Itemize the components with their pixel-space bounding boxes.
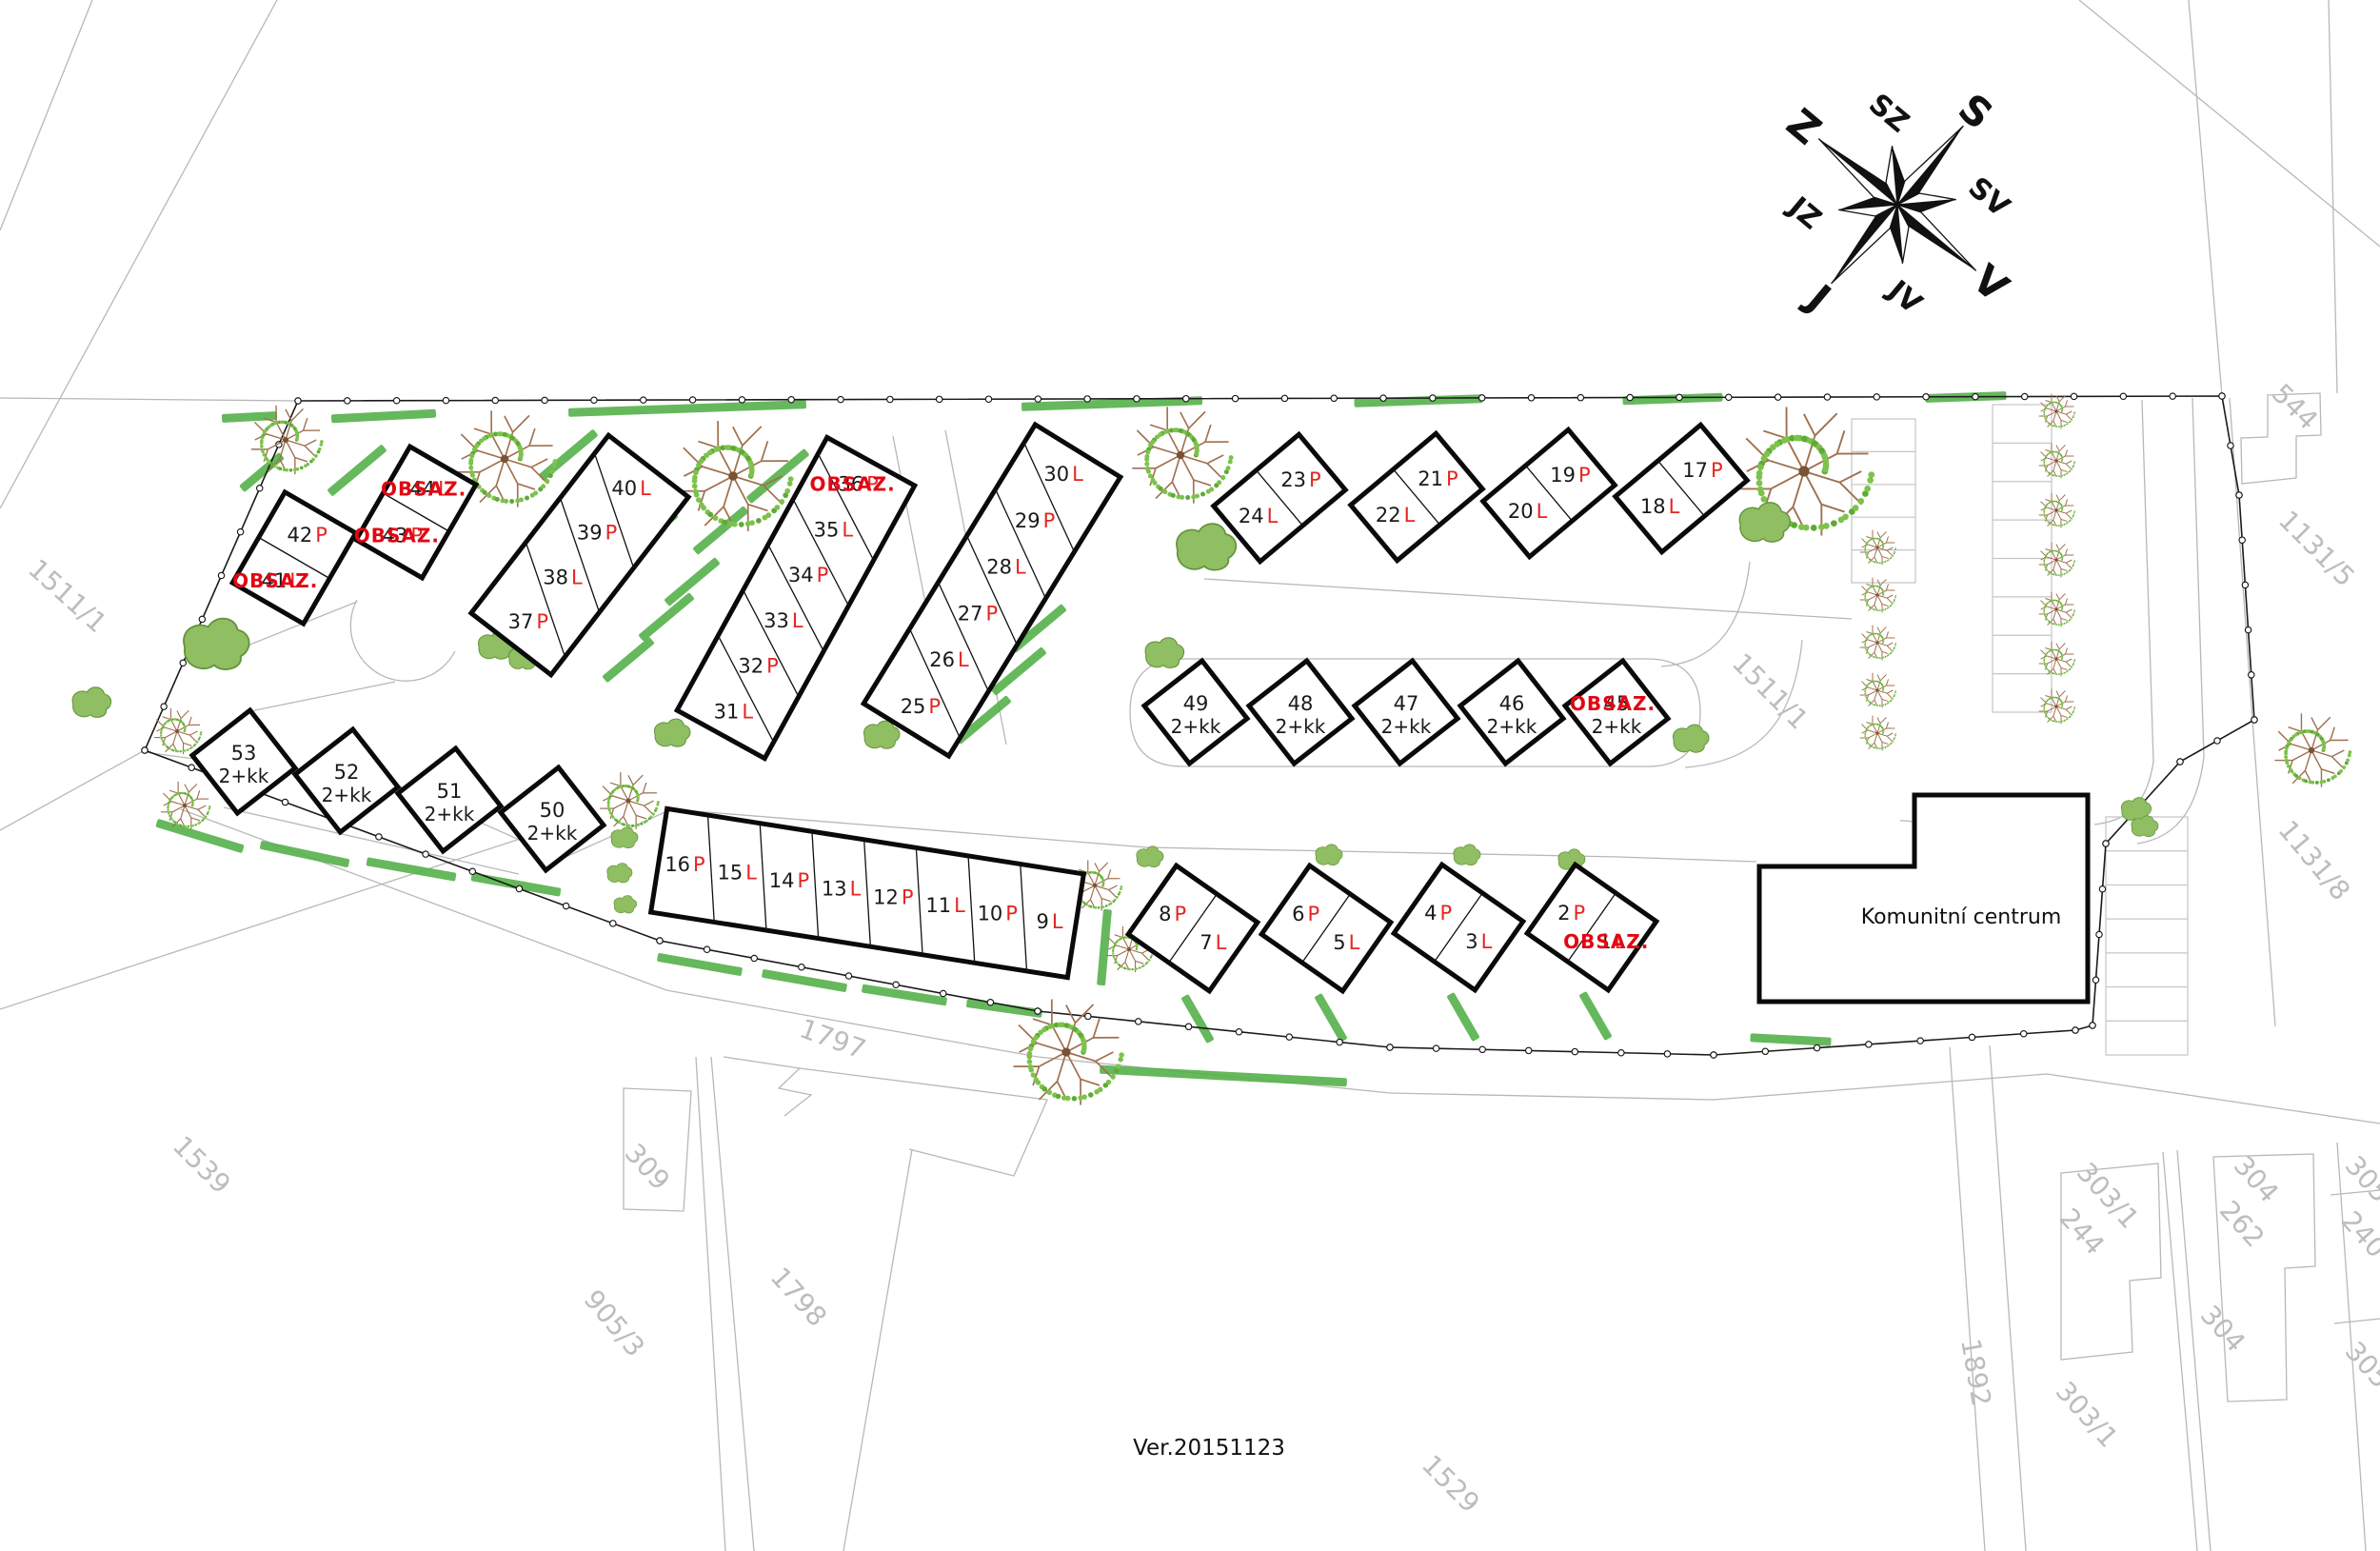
tree-leaf <box>169 815 170 817</box>
occupied-badge: OBSAZ. <box>1563 930 1649 953</box>
tree-leaf <box>1876 538 1878 540</box>
tree-leaf <box>1791 522 1797 528</box>
building-duplex <box>1128 865 1258 991</box>
boundary-vertex-dot <box>1726 394 1732 400</box>
tree-leaf <box>2053 720 2054 722</box>
tree-leaf <box>2311 781 2314 785</box>
tree-leaf <box>713 515 719 521</box>
tree-leaf <box>1031 1072 1037 1078</box>
tree-icon <box>2039 689 2075 725</box>
tree-trunk <box>626 799 631 804</box>
tree-leaf <box>1894 692 1896 694</box>
tree-leaf <box>2073 512 2075 514</box>
unit-letter: L <box>842 518 853 541</box>
kc-building <box>1759 795 2088 1002</box>
boundary-vertex-dot <box>2096 931 2102 937</box>
tree-icon <box>1860 673 1896 708</box>
road-line <box>1661 562 1750 666</box>
tree-leaf <box>2070 668 2072 670</box>
tree-leaf <box>2073 663 2074 665</box>
tree-leaf <box>1881 588 1883 590</box>
tree-leaf <box>1094 871 1097 874</box>
tree-leaf <box>200 733 202 735</box>
compass-label: J <box>1796 273 1840 321</box>
tree-leaf <box>2045 517 2047 519</box>
tree-trunk <box>1061 1047 1070 1056</box>
tree-leaf <box>2058 574 2060 576</box>
tree-leaf <box>2046 470 2048 472</box>
tree-leaf <box>1894 549 1896 551</box>
parcel-label: 1892 <box>1954 1336 1997 1408</box>
tree-leaf <box>1029 1067 1035 1073</box>
unit-label: 33L <box>764 609 803 632</box>
parcel-label: 304 <box>2194 1300 2251 1359</box>
tree-leaf <box>176 719 178 721</box>
tree-leaf <box>765 512 771 518</box>
unit-number: 3 <box>1465 930 1478 953</box>
tree-leaf <box>1114 899 1117 902</box>
tree-leaf <box>1124 967 1126 969</box>
boundary-vertex-dot <box>2228 443 2233 448</box>
tree-leaf <box>1879 587 1881 588</box>
tree-leaf <box>1191 437 1196 442</box>
tree-leaf <box>1090 905 1093 908</box>
tree-leaf <box>1113 956 1115 958</box>
parcel-label: 1131/8 <box>2272 814 2357 906</box>
tree-leaf <box>756 518 762 524</box>
hedge-stripe <box>1622 393 1722 406</box>
tree-leaf <box>2073 465 2074 467</box>
tree-leaf <box>2067 718 2069 720</box>
tree-icon <box>1132 407 1233 503</box>
tree-leaf <box>1028 1046 1034 1052</box>
tree-leaf <box>2073 463 2075 465</box>
tree-leaf <box>2322 745 2326 748</box>
tree-leaf <box>2342 766 2346 769</box>
tree-leaf <box>1864 486 1871 492</box>
boundary-vertex-dot <box>1134 396 1140 402</box>
tree-leaf <box>1072 1096 1078 1102</box>
unit-type-label: 2+kk <box>1381 715 1432 738</box>
unit-number: 34 <box>788 564 814 587</box>
tree-leaf <box>194 744 196 746</box>
tree-leaf <box>2055 649 2057 651</box>
tree-leaf <box>482 436 486 441</box>
tree-leaf <box>1063 1023 1069 1028</box>
tree-leaf <box>2070 421 2072 423</box>
tree-leaf <box>1842 514 1849 521</box>
hedge-stripe <box>1100 1065 1347 1087</box>
unit-letter: P <box>1175 903 1187 925</box>
tree-leaf <box>1114 958 1116 960</box>
tree-leaf <box>2070 520 2072 522</box>
tree-leaf <box>1882 545 1884 547</box>
unit-number: 31 <box>714 700 740 723</box>
tree-leaf <box>693 470 699 476</box>
boundary-vertex-dot <box>1572 1048 1577 1054</box>
boundary-vertex-dot <box>1479 1046 1485 1052</box>
tree-leaf <box>1874 633 1876 635</box>
unit-label: 28L <box>986 556 1026 579</box>
unit-letter: L <box>1216 931 1227 954</box>
tree-leaf <box>1870 559 1872 561</box>
tree-leaf <box>2073 413 2075 415</box>
tree-leaf <box>266 458 269 462</box>
unit-letter: P <box>536 610 548 633</box>
boundary-vertex-dot <box>2242 582 2248 587</box>
tree-leaf <box>2284 751 2288 755</box>
tree-leaf <box>749 520 755 526</box>
unit-letter: P <box>315 524 327 547</box>
unit-letter: P <box>766 655 779 678</box>
tree-leaf <box>1864 692 1866 694</box>
tree-leaf <box>318 447 322 451</box>
tree-leaf <box>2058 721 2060 723</box>
tree-leaf <box>2060 700 2062 702</box>
tree-leaf <box>1106 1080 1112 1085</box>
tree-leaf <box>2048 698 2050 700</box>
tree-leaf <box>510 435 515 440</box>
tree-leaf <box>1874 724 1876 726</box>
tree-leaf <box>2050 671 2052 673</box>
tree-leaf <box>1857 498 1864 505</box>
boundary-vertex-dot <box>2236 492 2242 498</box>
hedge-stripe <box>657 953 743 976</box>
boundary-vertex-dot <box>689 397 695 403</box>
tree-leaf <box>2043 708 2045 710</box>
unit-label: 18L <box>1640 495 1680 518</box>
tree-leaf <box>1867 743 1869 745</box>
tree-leaf <box>2044 466 2046 467</box>
tree-leaf <box>2322 780 2326 784</box>
tree-leaf <box>2064 623 2066 625</box>
tree-trunk <box>501 455 508 463</box>
tree-leaf <box>2046 406 2048 408</box>
tree-leaf <box>1803 525 1810 531</box>
unit-number: 5 <box>1333 931 1345 954</box>
tree-leaf <box>269 462 273 466</box>
tree-leaf <box>273 422 277 426</box>
tree-leaf <box>2050 424 2052 426</box>
tree-leaf <box>701 505 706 510</box>
tree-leaf <box>468 466 473 470</box>
unit-number: 9 <box>1036 910 1048 933</box>
compass-label: Z <box>1777 99 1830 153</box>
boundary-vertex-dot <box>941 990 946 996</box>
road-line <box>2163 1152 2197 1551</box>
tree-leaf <box>1872 538 1874 540</box>
tree-leaf <box>173 821 175 823</box>
tree-trunk <box>728 471 738 481</box>
boundary-vertex-dot <box>2239 537 2245 543</box>
tree-leaf <box>1116 896 1119 899</box>
tree-leaf <box>1874 586 1876 587</box>
tree-leaf <box>2058 698 2060 700</box>
version-label: Ver.20151123 <box>1133 1436 1285 1461</box>
tree-leaf <box>2064 720 2066 722</box>
building-duplex <box>1394 865 1523 990</box>
tree-leaf <box>1144 457 1149 462</box>
tree-leaf <box>208 805 210 807</box>
tree-leaf <box>631 786 634 789</box>
tree-leaf <box>1894 551 1895 553</box>
boundary-vertex-dot <box>887 396 893 402</box>
tree-leaf <box>1033 1035 1039 1041</box>
tree-leaf <box>1065 1096 1071 1102</box>
tree-leaf <box>203 818 205 820</box>
tree-leaf <box>200 731 202 733</box>
tree-leaf <box>1144 462 1149 467</box>
tree-leaf <box>1179 428 1183 433</box>
unit-number: 23 <box>1280 468 1306 491</box>
boundary-vertex-dot <box>1627 394 1633 400</box>
tree-leaf <box>2058 673 2060 675</box>
tree-leaf <box>176 793 178 795</box>
unit-label: 21P <box>1418 467 1458 490</box>
tree-leaf <box>652 812 655 815</box>
unit-label: 17P <box>1682 459 1722 482</box>
unit-label: 39P <box>577 522 617 545</box>
tree-leaf <box>2044 565 2046 567</box>
tree-trunk <box>183 804 187 807</box>
road-line <box>2334 1319 2380 1323</box>
boundary-vertex-dot <box>1526 1047 1532 1053</box>
tree-leaf <box>167 808 169 810</box>
tree-leaf <box>2050 622 2052 624</box>
tree-leaf <box>1036 1080 1041 1085</box>
tree-leaf <box>1220 475 1225 480</box>
unit-label: 40L <box>611 477 651 500</box>
tree-leaf <box>1088 1092 1094 1098</box>
tree-leaf <box>2053 649 2055 651</box>
tree-leaf <box>284 421 288 425</box>
tree-leaf <box>541 484 545 488</box>
tree-leaf <box>1120 885 1122 888</box>
tree-trunk <box>1875 731 1878 734</box>
compass-label: JZ <box>1780 189 1827 236</box>
tree-leaf <box>2050 572 2052 574</box>
boundary-vertex-dot <box>2177 759 2183 765</box>
boundary-vertex-dot <box>2071 393 2076 399</box>
tree-leaf <box>2053 402 2055 404</box>
tree-leaf <box>1042 1086 1048 1092</box>
tree-leaf <box>285 468 288 472</box>
tree-leaf <box>2058 475 2060 477</box>
unit-number: 47 <box>1394 692 1419 715</box>
tree-leaf <box>1209 487 1214 491</box>
occupied-badge: OBSAZ. <box>381 478 466 501</box>
tree-leaf <box>2056 624 2058 626</box>
unit-number: 22 <box>1376 504 1401 527</box>
tree-leaf <box>1879 634 1881 636</box>
tree-leaf <box>2071 518 2073 520</box>
tree-leaf <box>1866 649 1868 651</box>
tree-leaf <box>261 436 265 440</box>
tree-leaf <box>2284 755 2288 759</box>
tree-leaf <box>2044 657 2046 659</box>
tree-leaf <box>2058 426 2060 428</box>
tree-leaf <box>1879 657 1881 659</box>
tree-leaf <box>187 748 188 750</box>
tree-leaf <box>2320 737 2324 741</box>
tree-leaf <box>545 479 549 484</box>
tree-trunk <box>2054 409 2057 412</box>
unit-number: 14 <box>769 869 795 892</box>
unit-number: 12 <box>873 885 899 908</box>
tree-leaf <box>1876 633 1878 635</box>
tree-leaf <box>2060 504 2062 506</box>
boundary-vertex-dot <box>751 955 757 961</box>
tree-leaf <box>1894 595 1896 597</box>
tree-leaf <box>2046 455 2048 457</box>
tree-leaf <box>749 467 755 473</box>
tree-leaf <box>2046 569 2048 571</box>
tree-leaf <box>2053 501 2055 503</box>
boundary-vertex-dot <box>985 396 991 402</box>
tree-leaf <box>1885 656 1887 658</box>
boundary-vertex-dot <box>161 704 167 709</box>
unit-number: 6 <box>1292 903 1304 925</box>
building-duplex <box>1351 433 1482 560</box>
tree-leaf <box>2055 501 2057 503</box>
compass-label: V <box>1964 255 2018 311</box>
tree-leaf <box>163 724 165 726</box>
boundary-vertex-dot <box>1528 395 1534 401</box>
tree-leaf <box>2333 774 2337 778</box>
tree-leaf <box>1888 559 1890 561</box>
unit-number: 39 <box>577 522 603 545</box>
hedge-stripe <box>1750 1033 1831 1045</box>
tree-leaf <box>1888 654 1890 656</box>
unit-letter: L <box>1481 930 1493 953</box>
tree-leaf <box>177 750 179 752</box>
boundary-vertex-dot <box>492 397 498 403</box>
tree-trunk <box>1875 546 1878 548</box>
tree-leaf <box>2067 621 2069 623</box>
tree-icon <box>154 708 203 754</box>
tree-leaf <box>2061 525 2063 527</box>
parcel-label: 905/3 <box>578 1283 651 1362</box>
tree-leaf <box>2051 697 2053 699</box>
tree-leaf <box>2304 779 2308 783</box>
parcel-label: 303/1 <box>2050 1376 2125 1454</box>
tree-leaf <box>261 449 265 453</box>
tree-leaf <box>208 811 209 813</box>
boundary-vertex-dot <box>1969 1034 1974 1040</box>
tree-trunk <box>2054 705 2057 707</box>
unit-number: 7 <box>1200 931 1212 954</box>
tree-leaf <box>2043 412 2045 414</box>
tree-leaf <box>273 465 277 468</box>
boundary-vertex-dot <box>2219 393 2225 399</box>
tree-leaf <box>2045 713 2047 715</box>
tree-leaf <box>1195 494 1200 499</box>
tree-leaf <box>1874 681 1876 683</box>
tree-leaf <box>182 723 184 725</box>
tree-leaf <box>2061 557 2063 559</box>
tree-leaf <box>707 450 713 456</box>
parcel-label: 1131/5 <box>2272 505 2361 593</box>
boundary-vertex-dot <box>563 903 568 908</box>
tree-trunk <box>1875 641 1878 644</box>
tree-leaf <box>1872 724 1874 726</box>
boundary-vertex-dot <box>2103 841 2109 846</box>
tree-leaf <box>1864 645 1866 646</box>
tree-leaf <box>2060 652 2062 654</box>
tree-leaf <box>468 461 473 466</box>
tree-icon <box>2039 642 2075 677</box>
parking-stalls <box>2106 817 2188 1055</box>
tree-leaf <box>497 431 502 436</box>
tree-leaf <box>2046 505 2048 507</box>
tree-leaf <box>1881 726 1883 728</box>
tree-leaf <box>2073 611 2075 613</box>
tree-leaf <box>269 424 273 428</box>
tree-leaf <box>525 495 529 500</box>
boundary-vertex-dot <box>1084 396 1090 402</box>
tree-leaf <box>264 428 268 432</box>
tree-leaf <box>188 825 189 827</box>
tree-leaf <box>161 738 163 740</box>
tree-leaf <box>1867 727 1869 729</box>
unit-number: 28 <box>986 556 1012 579</box>
tree-leaf <box>1865 695 1867 697</box>
tree-leaf <box>1892 698 1894 700</box>
tree-leaf <box>2044 607 2046 609</box>
tree-leaf <box>2044 416 2046 418</box>
unit-letter: L <box>850 878 862 901</box>
unit-label: 29P <box>1015 509 1055 532</box>
unit-number: 27 <box>958 602 983 625</box>
bush-icon <box>2132 816 2158 837</box>
tree-leaf <box>1876 724 1878 726</box>
tree-leaf <box>1129 968 1131 970</box>
tree-leaf <box>1885 608 1887 610</box>
tree-leaf <box>1864 548 1866 550</box>
tree-leaf <box>2298 730 2302 734</box>
tree-leaf <box>1864 734 1866 736</box>
tree-leaf <box>2051 402 2053 404</box>
tree-leaf <box>2071 714 2073 716</box>
tree-leaf <box>2050 719 2052 721</box>
tree-leaf <box>624 785 626 787</box>
tree-leaf <box>2073 661 2075 663</box>
parking-lot-outline <box>2106 817 2188 1055</box>
unit-letter: L <box>1349 931 1360 954</box>
tree-leaf <box>2049 621 2051 623</box>
tree-leaf <box>732 522 738 527</box>
tree-leaf <box>2067 571 2069 573</box>
building-duplex <box>356 447 476 578</box>
unit-number: 21 <box>1418 467 1443 490</box>
tree-leaf <box>1794 435 1800 442</box>
tree-leaf <box>1872 586 1874 587</box>
tree-leaf <box>173 794 175 796</box>
unit-letter: L <box>792 609 803 632</box>
boundary-vertex-dot <box>142 747 148 753</box>
tree-leaf <box>1823 523 1830 529</box>
boundary-vertex-dot <box>788 397 794 403</box>
road-line <box>2329 0 2337 393</box>
tree-leaf <box>515 441 520 446</box>
tree-leaf <box>469 453 474 458</box>
unit-number: 46 <box>1499 692 1525 715</box>
tree-leaf <box>1119 964 1121 966</box>
tree-leaf <box>730 446 736 451</box>
road-line <box>2142 400 2153 762</box>
tree-leaf <box>724 445 730 450</box>
boundary-vertex-dot <box>1236 1029 1241 1035</box>
